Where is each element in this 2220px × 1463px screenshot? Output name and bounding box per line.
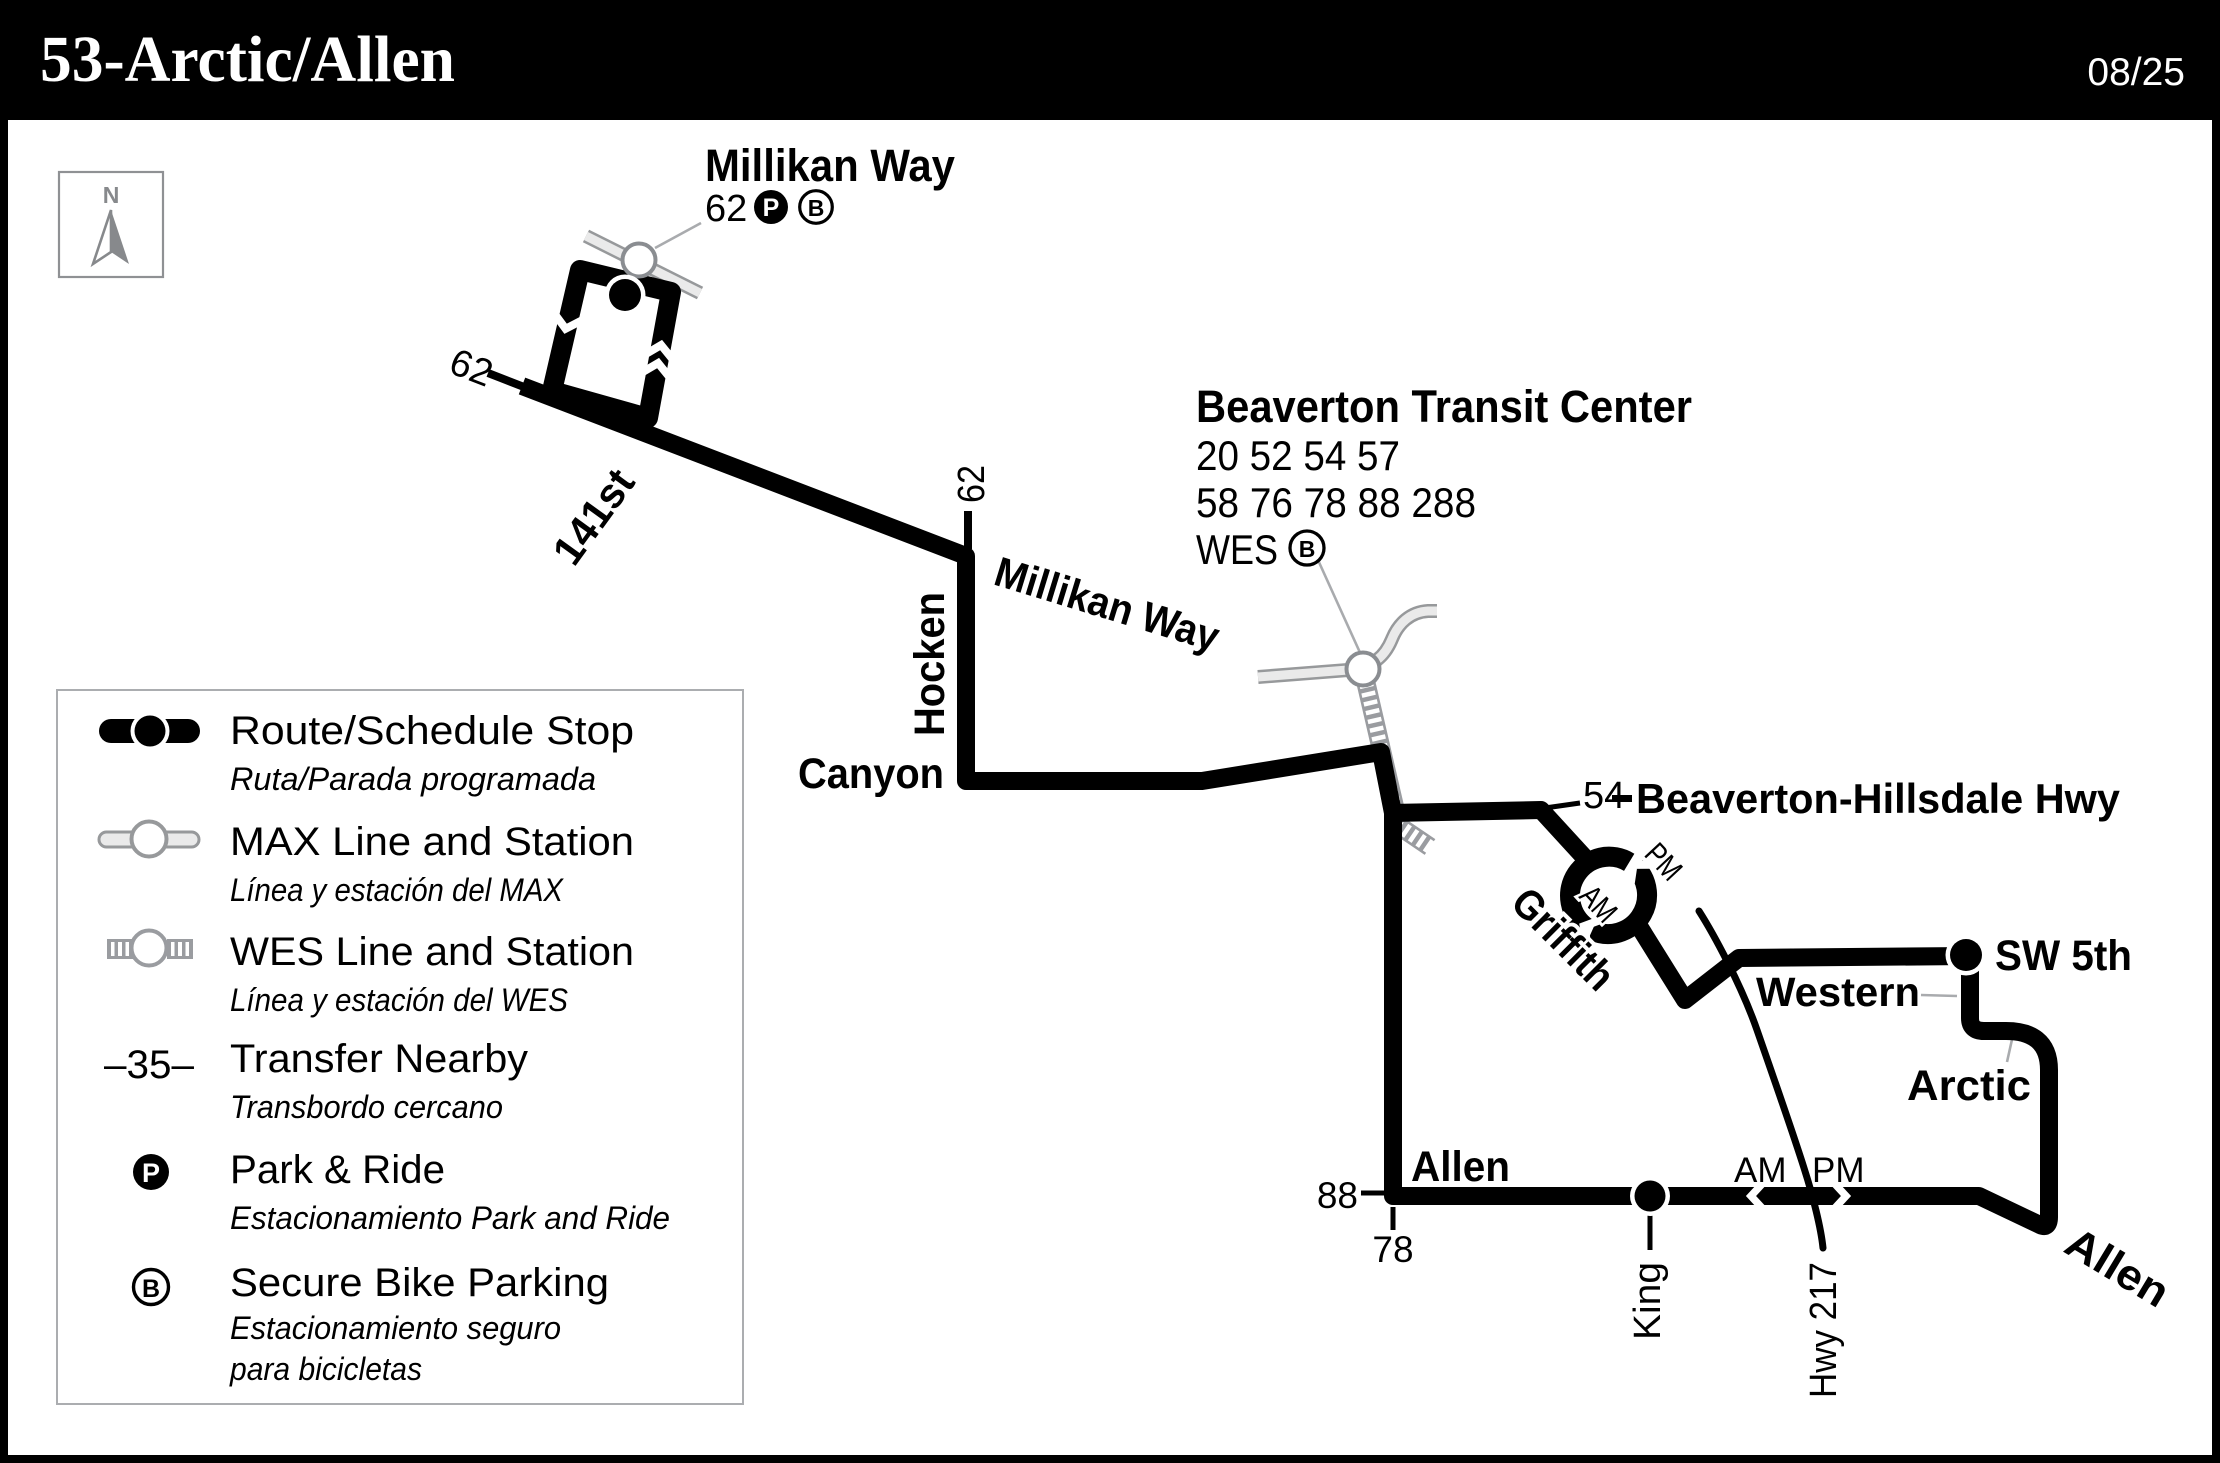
svg-text:Route/Schedule Stop: Route/Schedule Stop	[230, 709, 634, 753]
svg-text:Estacionamiento Park and Ride: Estacionamiento Park and Ride	[230, 1200, 670, 1236]
svg-text:AM: AM	[1734, 1151, 1787, 1190]
svg-text:SW 5th: SW 5th	[1995, 932, 2132, 980]
svg-text:P: P	[142, 1158, 160, 1188]
svg-text:62: 62	[705, 188, 747, 230]
svg-text:Millikan Way: Millikan Way	[705, 140, 955, 191]
svg-text:B: B	[142, 1275, 160, 1303]
svg-text:Western: Western	[1756, 969, 1920, 1015]
svg-text:58 76 78 88 288: 58 76 78 88 288	[1196, 479, 1476, 526]
svg-text:Arctic: Arctic	[1907, 1062, 2031, 1110]
svg-text:MAX Line and Station: MAX Line and Station	[230, 820, 634, 864]
svg-text:PM: PM	[1812, 1151, 1865, 1190]
svg-text:N: N	[103, 182, 120, 208]
svg-text:20 52 54 57: 20 52 54 57	[1196, 432, 1400, 479]
svg-text:P: P	[763, 194, 780, 222]
svg-text:WES Line and Station: WES Line and Station	[230, 930, 634, 974]
svg-text:Allen: Allen	[1411, 1143, 1510, 1191]
svg-text:B: B	[808, 195, 825, 221]
svg-text:B: B	[1299, 536, 1316, 562]
svg-text:08/25: 08/25	[2087, 51, 2185, 94]
svg-text:Transfer Nearby: Transfer Nearby	[230, 1037, 528, 1081]
svg-text:para bicicletas: para bicicletas	[229, 1351, 422, 1387]
svg-text:Línea y estación del WES: Línea y estación del WES	[230, 982, 568, 1018]
svg-text:Estacionamiento seguro: Estacionamiento seguro	[230, 1310, 561, 1346]
svg-text:Beaverton-Hillsdale Hwy: Beaverton-Hillsdale Hwy	[1636, 775, 2121, 822]
svg-text:62: 62	[951, 465, 993, 503]
svg-text:53-Arctic/Allen: 53-Arctic/Allen	[40, 23, 455, 96]
svg-text:Hwy 217: Hwy 217	[1803, 1262, 1845, 1398]
svg-text:78: 78	[1372, 1229, 1413, 1270]
svg-text:King: King	[1627, 1262, 1669, 1340]
svg-text:WES: WES	[1196, 526, 1278, 573]
svg-text:–35–: –35–	[104, 1043, 195, 1087]
svg-text:Hocken: Hocken	[906, 592, 954, 736]
svg-text:88: 88	[1317, 1175, 1358, 1216]
svg-text:Ruta/Parada programada: Ruta/Parada programada	[230, 761, 596, 797]
svg-text:Línea y estación del MAX: Línea y estación del MAX	[230, 872, 565, 908]
svg-text:Park & Ride: Park & Ride	[230, 1148, 445, 1192]
svg-text:Transbordo cercano: Transbordo cercano	[230, 1089, 503, 1125]
svg-text:Secure Bike Parking: Secure Bike Parking	[230, 1261, 609, 1305]
svg-text:Beaverton Transit Center: Beaverton Transit Center	[1196, 381, 1692, 432]
svg-text:Canyon: Canyon	[798, 750, 944, 798]
